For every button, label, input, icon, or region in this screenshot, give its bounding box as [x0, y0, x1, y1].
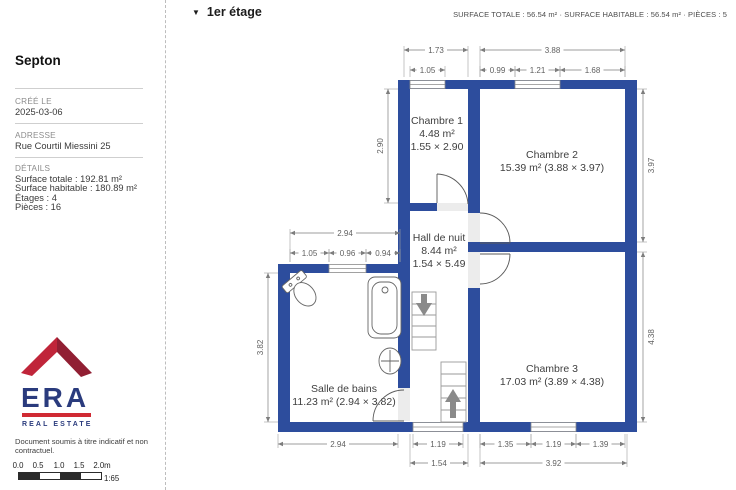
svg-text:1.19: 1.19	[430, 440, 446, 449]
svg-text:3.88: 3.88	[545, 46, 561, 55]
svg-text:1.39: 1.39	[593, 440, 609, 449]
svg-text:1.54 × 5.49: 1.54 × 5.49	[413, 258, 466, 270]
svg-text:17.03 m² (3.89 × 4.38): 17.03 m² (3.89 × 4.38)	[500, 376, 604, 388]
scale-tick: 1.0	[54, 461, 65, 470]
dimension: 0.99	[480, 66, 515, 78]
svg-text:2.94: 2.94	[330, 440, 346, 449]
svg-text:3.82: 3.82	[256, 339, 265, 355]
dimension: 1.21	[515, 66, 560, 78]
scale-tick: 1.5	[74, 461, 85, 470]
svg-text:4.38: 4.38	[647, 329, 656, 345]
svg-text:2.90: 2.90	[376, 138, 385, 154]
floor-selector[interactable]: ▼1er étage	[192, 5, 262, 19]
svg-text:3.97: 3.97	[647, 157, 656, 173]
staircase	[412, 292, 466, 422]
dimension: 3.82	[256, 273, 279, 422]
scale-tick: 0.5	[33, 461, 44, 470]
door-chambre1	[437, 174, 468, 204]
address-label: ADRESSE	[15, 131, 56, 140]
svg-text:0.94: 0.94	[375, 249, 391, 258]
dimension: 1.05	[410, 66, 445, 78]
dimension: 2.90	[376, 89, 399, 203]
svg-text:0.96: 0.96	[340, 249, 356, 258]
room-label: Salle de bains11.23 m² (2.94 × 3.82)	[292, 383, 395, 408]
divider	[15, 123, 143, 124]
room-label: Hall de nuit8.44 m²1.54 × 5.49	[413, 232, 466, 270]
sink-icon	[379, 348, 401, 374]
svg-text:1.05: 1.05	[302, 249, 318, 258]
scale-bar-segments	[18, 472, 102, 480]
disclaimer-text: Document soumis à titre indicatif et non…	[15, 437, 157, 456]
stairs-up-arrow-icon	[450, 402, 456, 418]
era-tagline: REAL ESTATE	[22, 421, 95, 428]
divider	[15, 88, 143, 89]
svg-text:Salle de bains: Salle de bains	[311, 383, 377, 395]
property-title: Septon	[15, 53, 61, 68]
door-chambre3	[480, 254, 510, 284]
svg-text:2.94: 2.94	[337, 229, 353, 238]
dimension: 0.94	[366, 249, 400, 263]
details-list: Surface totale : 192.81 m² Surface habit…	[15, 175, 137, 213]
room-label: Chambre 317.03 m² (3.89 × 4.38)	[500, 363, 604, 388]
dimension: 4.38	[637, 252, 656, 422]
svg-text:15.39 m² (3.88 × 3.97): 15.39 m² (3.88 × 3.97)	[500, 162, 604, 174]
svg-text:1.05: 1.05	[420, 66, 436, 75]
chevron-down-icon: ▼	[192, 8, 200, 17]
era-roof-icon	[19, 334, 95, 380]
svg-text:1.54: 1.54	[431, 459, 447, 468]
floor-stats: SURFACE TOTALE : 56.54 m² · SURFACE HABI…	[453, 10, 727, 19]
svg-text:1.35: 1.35	[498, 440, 514, 449]
scale-ratio: 1:65	[104, 474, 119, 483]
svg-text:1.21: 1.21	[530, 66, 546, 75]
svg-text:Chambre 2: Chambre 2	[526, 149, 578, 161]
dimension: 1.39	[576, 434, 625, 449]
svg-text:1.19: 1.19	[546, 440, 562, 449]
svg-text:11.23 m² (2.94 × 3.82): 11.23 m² (2.94 × 3.82)	[292, 396, 395, 408]
dimension: 2.94	[278, 434, 398, 449]
sidebar: Septon CRÉÉ LE 2025-03-06 ADRESSE Rue Co…	[0, 0, 166, 490]
room-label: Chambre 215.39 m² (3.88 × 3.97)	[500, 149, 604, 174]
detail-pieces: Pièces : 16	[15, 203, 137, 212]
dimension: 1.05	[290, 249, 329, 263]
scale-tick: 2.0m	[93, 461, 110, 470]
bathtub-drain-icon	[382, 287, 388, 293]
svg-text:4.48 m²: 4.48 m²	[419, 128, 455, 140]
era-logo: ERA REAL ESTATE	[19, 334, 95, 428]
floor-label: 1er étage	[207, 5, 262, 19]
scale-tick: 0.0	[13, 461, 24, 470]
svg-text:8.44 m²: 8.44 m²	[421, 245, 457, 257]
dimension: 1.19	[531, 434, 576, 449]
svg-text:Hall de nuit: Hall de nuit	[413, 232, 466, 244]
created-value: 2025-03-06	[15, 107, 63, 117]
svg-text:0.99: 0.99	[490, 66, 506, 75]
dimension: 1.68	[560, 66, 625, 78]
dimension: 1.19	[413, 434, 463, 449]
stairs-down-arrow-icon	[421, 294, 427, 304]
dimension: 0.96	[329, 249, 366, 263]
divider	[15, 157, 143, 158]
svg-text:3.92: 3.92	[546, 459, 562, 468]
dimension: 3.97	[637, 89, 656, 242]
floorplan-page: Septon CRÉÉ LE 2025-03-06 ADRESSE Rue Co…	[0, 0, 736, 490]
era-brand: ERA	[21, 386, 95, 410]
svg-text:1.68: 1.68	[585, 66, 601, 75]
door-chambre2	[480, 213, 510, 243]
svg-text:1.73: 1.73	[428, 46, 444, 55]
svg-text:1.55 × 2.90: 1.55 × 2.90	[411, 141, 464, 153]
created-label: CRÉÉ LE	[15, 97, 52, 106]
svg-text:Chambre 1: Chambre 1	[411, 115, 463, 127]
dimension: 1.35	[480, 434, 531, 449]
svg-text:Chambre 3: Chambre 3	[526, 363, 578, 375]
fixtures	[281, 270, 401, 374]
details-label: DÉTAILS	[15, 164, 50, 173]
era-red-bar	[22, 413, 91, 417]
address-value: Rue Courtil Miessini 25	[15, 141, 111, 151]
floorplan-drawing: 1.733.881.050.991.211.682.941.050.960.94…	[180, 28, 736, 490]
room-label: Chambre 14.48 m²1.55 × 2.90	[411, 115, 464, 153]
